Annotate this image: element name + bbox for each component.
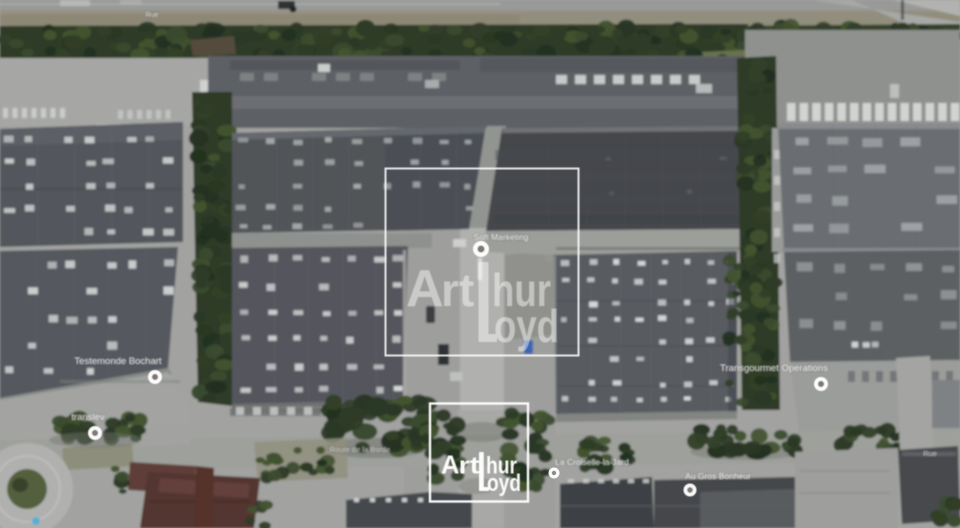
svg-text:A: A <box>441 452 459 480</box>
svg-text:rt: rt <box>459 453 480 480</box>
svg-text:Route de la Borde: Route de la Borde <box>330 445 390 454</box>
svg-text:Rue: Rue <box>923 449 937 458</box>
svg-text:A: A <box>406 260 444 318</box>
svg-text:Au Gros Bonheur: Au Gros Bonheur <box>685 471 751 481</box>
svg-text:oyd: oyd <box>494 300 559 352</box>
svg-text:rt: rt <box>441 264 474 316</box>
svg-text:Rue: Rue <box>146 12 159 19</box>
svg-text:La Croiselle-la-Jard: La Croiselle-la-Jard <box>555 457 629 467</box>
svg-text:Transgourmet Operations: Transgourmet Operations <box>720 363 828 374</box>
svg-text:oyd: oyd <box>487 470 521 497</box>
svg-text:Soft Marketing: Soft Marketing <box>474 232 529 242</box>
svg-text:translev: translev <box>71 412 105 423</box>
svg-text:Testemonde Bochart: Testemonde Bochart <box>74 356 161 367</box>
